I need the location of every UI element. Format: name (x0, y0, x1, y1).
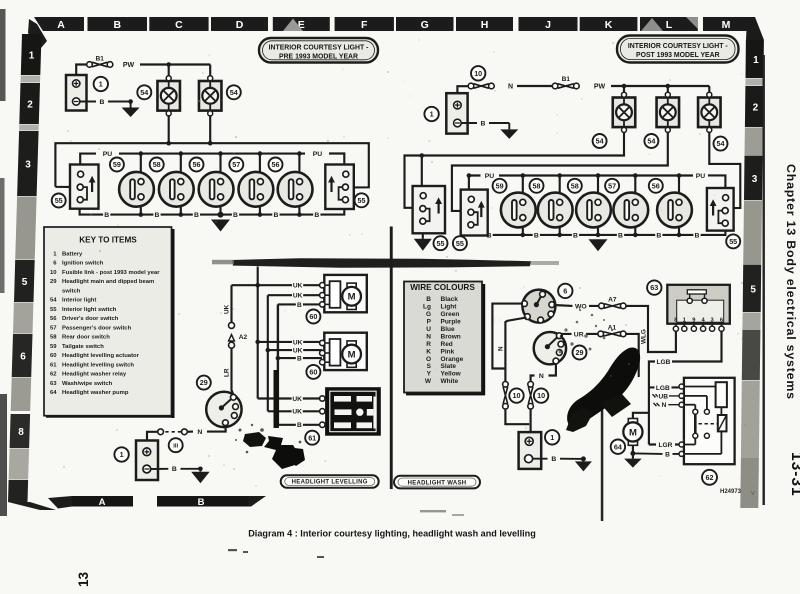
svg-text:B: B (618, 232, 623, 239)
svg-text:62: 62 (50, 372, 57, 378)
svg-text:B: B (273, 212, 278, 219)
svg-text:Brown: Brown (441, 333, 461, 340)
svg-text:M: M (722, 19, 731, 31)
svg-text:58: 58 (533, 181, 541, 190)
svg-text:N: N (508, 84, 513, 91)
svg-text:UK: UK (292, 409, 302, 416)
svg-text:N: N (426, 333, 431, 340)
svg-text:Green: Green (441, 311, 460, 318)
svg-text:55: 55 (50, 307, 57, 313)
svg-text:UK: UK (293, 347, 303, 354)
svg-text:P: P (427, 319, 432, 326)
svg-text:N: N (197, 429, 202, 436)
svg-text:Red: Red (441, 341, 453, 348)
svg-text:Wash/wipe switch: Wash/wipe switch (62, 381, 113, 387)
svg-text:B: B (172, 466, 177, 473)
svg-text:1: 1 (430, 110, 434, 119)
svg-text:WLG: WLG (640, 329, 647, 344)
svg-text:10: 10 (513, 391, 521, 400)
svg-text:57: 57 (232, 160, 240, 169)
svg-text:PU: PU (485, 173, 495, 180)
svg-text:B: B (297, 422, 302, 429)
svg-text:Chapter 13 Body electrical sys: Chapter 13 Body electrical systems (784, 164, 798, 400)
svg-text:K: K (426, 348, 431, 355)
svg-text:B: B (233, 212, 238, 219)
svg-text:H24973: H24973 (720, 489, 742, 495)
svg-text:A: A (57, 19, 65, 31)
svg-text:55: 55 (456, 239, 464, 248)
svg-text:B: B (481, 121, 486, 128)
svg-text:PRE 1993 MODEL YEAR: PRE 1993 MODEL YEAR (279, 53, 358, 60)
svg-text:Lg: Lg (423, 304, 431, 311)
svg-text:UK: UK (293, 283, 303, 290)
svg-text:F: F (361, 19, 368, 31)
svg-text:B: B (314, 212, 319, 219)
svg-text:1: 1 (550, 433, 554, 442)
svg-text:R: R (426, 341, 431, 348)
svg-text:54: 54 (230, 88, 238, 97)
svg-text:KEY TO ITEMS: KEY TO ITEMS (79, 236, 137, 245)
svg-text:LGB: LGB (656, 359, 670, 366)
svg-text:U: U (426, 326, 431, 333)
svg-text:B: B (695, 232, 700, 239)
svg-text:61: 61 (308, 433, 316, 442)
svg-text:Headlight washer relay: Headlight washer relay (62, 372, 127, 378)
svg-text:Interior light: Interior light (62, 298, 96, 304)
svg-text:LR: LR (224, 368, 231, 377)
svg-text:57: 57 (50, 325, 57, 331)
svg-text:D: D (236, 19, 244, 31)
svg-text:63: 63 (50, 381, 57, 387)
svg-text:W: W (425, 378, 432, 385)
svg-text:switch: switch (62, 288, 81, 294)
svg-text:Pink: Pink (441, 348, 455, 355)
svg-text:58: 58 (153, 160, 161, 169)
svg-text:Tailgate switch: Tailgate switch (62, 344, 104, 350)
svg-text:64: 64 (50, 390, 57, 396)
svg-text:64: 64 (614, 442, 622, 451)
svg-text:61: 61 (50, 362, 57, 368)
svg-text:1: 1 (99, 80, 103, 89)
svg-text:White: White (441, 378, 459, 385)
svg-text:B: B (573, 232, 578, 239)
svg-text:3: 3 (752, 174, 758, 185)
svg-text:B: B (198, 497, 205, 508)
svg-text:S: S (427, 363, 432, 370)
svg-text:29: 29 (200, 378, 208, 387)
svg-text:58: 58 (571, 181, 579, 190)
svg-text:5: 5 (750, 284, 756, 295)
svg-text:H: H (481, 19, 489, 31)
svg-text:10: 10 (50, 270, 57, 276)
svg-text:59: 59 (50, 344, 57, 350)
svg-text:G: G (421, 19, 429, 31)
svg-text:A: A (99, 497, 106, 508)
svg-text:PU: PU (696, 173, 706, 180)
svg-text:POST 1993 MODEL YEAR: POST 1993 MODEL YEAR (636, 52, 720, 59)
svg-text:Black: Black (441, 296, 459, 303)
svg-text:LGB: LGB (656, 385, 670, 392)
svg-text:Rear door switch: Rear door switch (62, 335, 110, 341)
svg-text:B: B (297, 302, 302, 309)
svg-text:Blue: Blue (441, 326, 455, 333)
svg-text:10: 10 (537, 391, 545, 400)
svg-text:56: 56 (652, 181, 660, 190)
svg-text:3: 3 (25, 160, 31, 171)
svg-text:Slate: Slate (441, 363, 457, 370)
svg-text:1: 1 (29, 51, 35, 62)
svg-text:57: 57 (608, 181, 616, 190)
svg-text:B: B (113, 19, 121, 31)
svg-text:10: 10 (474, 69, 482, 78)
svg-text:III: III (173, 443, 178, 449)
svg-text:UK: UK (293, 293, 303, 300)
svg-text:INTERIOR COURTESY LIGHT -: INTERIOR COURTESY LIGHT - (269, 44, 369, 51)
svg-text:B: B (551, 456, 556, 463)
svg-text:55: 55 (437, 239, 445, 248)
svg-text:Purple: Purple (441, 319, 462, 326)
svg-text:HEADLIGHT WASH: HEADLIGHT WASH (408, 480, 467, 486)
svg-text:V: V (751, 491, 755, 497)
svg-text:INTERIOR COURTESY LIGHT -: INTERIOR COURTESY LIGHT - (628, 43, 728, 50)
svg-text:B: B (100, 99, 105, 106)
svg-text:Battery: Battery (62, 251, 83, 257)
svg-text:PU: PU (103, 151, 113, 158)
svg-text:1: 1 (753, 55, 759, 66)
svg-text:54: 54 (596, 137, 604, 146)
svg-text:B: B (104, 212, 109, 219)
svg-text:B1: B1 (562, 76, 571, 83)
svg-text:N: N (662, 402, 667, 409)
svg-text:UK: UK (293, 339, 303, 346)
svg-text:60: 60 (50, 353, 57, 359)
svg-text:13: 13 (76, 571, 91, 587)
svg-text:UR: UR (574, 331, 584, 338)
svg-text:2: 2 (753, 103, 759, 114)
svg-text:O: O (426, 356, 431, 363)
svg-text:60: 60 (309, 367, 317, 376)
svg-text:B: B (194, 212, 199, 219)
svg-text:54: 54 (50, 298, 57, 304)
svg-text:N: N (498, 346, 505, 351)
svg-text:Yellow: Yellow (441, 371, 462, 378)
svg-text:B: B (534, 232, 539, 239)
svg-text:A7: A7 (608, 296, 617, 303)
svg-text:UK: UK (224, 304, 231, 314)
svg-text:60: 60 (309, 312, 317, 321)
svg-text:M: M (348, 292, 356, 303)
svg-text:Light: Light (441, 304, 458, 311)
svg-text:PU: PU (313, 151, 323, 158)
svg-text:PW: PW (594, 84, 606, 91)
svg-text:54: 54 (140, 88, 148, 97)
svg-text:Headlight levelling actuator: Headlight levelling actuator (62, 353, 140, 359)
svg-text:56: 56 (50, 316, 57, 322)
svg-text:58: 58 (50, 335, 57, 341)
svg-text:5: 5 (22, 277, 28, 288)
svg-text:WIRE COLOURS: WIRE COLOURS (410, 283, 475, 292)
svg-text:62: 62 (706, 473, 714, 482)
svg-text:54: 54 (717, 139, 725, 148)
svg-text:Driver's door switch: Driver's door switch (62, 316, 119, 322)
svg-text:Passenger's door switch: Passenger's door switch (62, 325, 132, 331)
svg-text:C: C (175, 19, 183, 31)
svg-text:54: 54 (647, 137, 655, 146)
svg-text:PW: PW (123, 62, 135, 69)
svg-text:63: 63 (650, 283, 658, 292)
svg-text:Headlight main and dipped beam: Headlight main and dipped beam (62, 279, 154, 285)
svg-text:Orange: Orange (441, 356, 464, 363)
svg-text:HEADLIGHT LEVELLING: HEADLIGHT LEVELLING (292, 480, 368, 486)
svg-text:55: 55 (358, 196, 366, 205)
svg-text:UK: UK (292, 396, 302, 403)
svg-text:B1: B1 (96, 56, 105, 63)
svg-text:13-31: 13-31 (788, 452, 800, 497)
svg-text:2: 2 (27, 100, 33, 111)
svg-text:L: L (666, 19, 673, 31)
svg-text:29: 29 (576, 348, 584, 357)
svg-text:B: B (297, 355, 302, 362)
svg-text:Diagram 4 : Interior courtesy: Diagram 4 : Interior courtesy lighting, … (248, 529, 536, 539)
svg-text:56: 56 (193, 160, 201, 169)
svg-text:Headlight washer pump: Headlight washer pump (62, 390, 129, 396)
svg-text:59: 59 (496, 181, 504, 190)
svg-text:29: 29 (50, 279, 57, 285)
svg-text:Fusible link - post 1993 model: Fusible link - post 1993 model year (62, 270, 160, 276)
svg-text:N: N (539, 373, 544, 380)
svg-text:59: 59 (113, 160, 121, 169)
svg-text:A2: A2 (239, 334, 248, 341)
svg-text:LGR: LGR (658, 442, 672, 449)
svg-text:Ignition switch: Ignition switch (62, 261, 104, 267)
svg-text:Y: Y (427, 371, 432, 378)
svg-text:55: 55 (55, 196, 63, 205)
svg-text:6: 6 (20, 352, 26, 363)
svg-text:M: M (629, 427, 637, 438)
svg-text:8: 8 (18, 427, 24, 438)
svg-text:K: K (605, 19, 613, 31)
svg-text:55: 55 (729, 237, 737, 246)
svg-text:6: 6 (563, 286, 567, 295)
svg-text:M: M (348, 350, 356, 361)
svg-text:B: B (665, 451, 670, 458)
svg-text:Interior light switch: Interior light switch (62, 307, 117, 313)
svg-text:B: B (426, 296, 431, 303)
svg-text:G: G (426, 311, 431, 318)
svg-text:B: B (656, 232, 661, 239)
svg-text:B: B (155, 212, 160, 219)
svg-text:J: J (545, 19, 551, 31)
svg-text:UB: UB (659, 393, 669, 400)
svg-text:56: 56 (272, 160, 280, 169)
svg-text:Headlight levelling switch: Headlight levelling switch (62, 362, 134, 368)
svg-text:1: 1 (120, 450, 124, 459)
